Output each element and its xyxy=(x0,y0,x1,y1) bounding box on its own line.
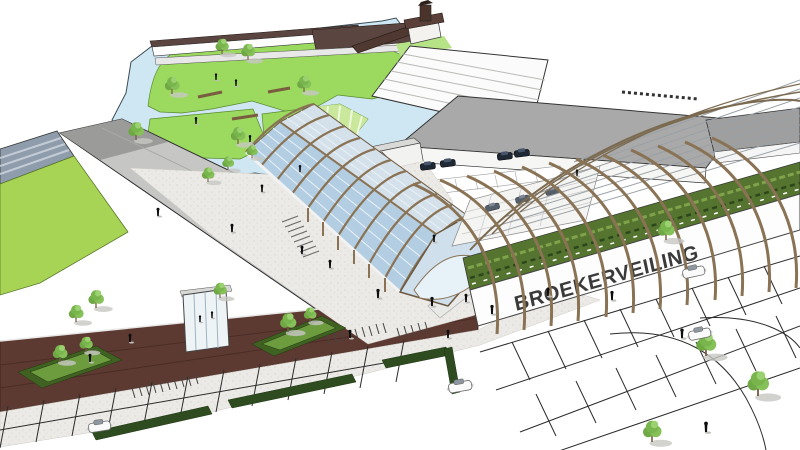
render-canvas: BROEKERVEILING xyxy=(0,0,800,450)
curved-lane-edge xyxy=(610,333,766,450)
sports-field xyxy=(0,156,128,295)
architectural-render: BROEKERVEILING xyxy=(0,0,800,450)
roof-vents xyxy=(622,92,698,99)
tower-turret xyxy=(420,5,431,21)
